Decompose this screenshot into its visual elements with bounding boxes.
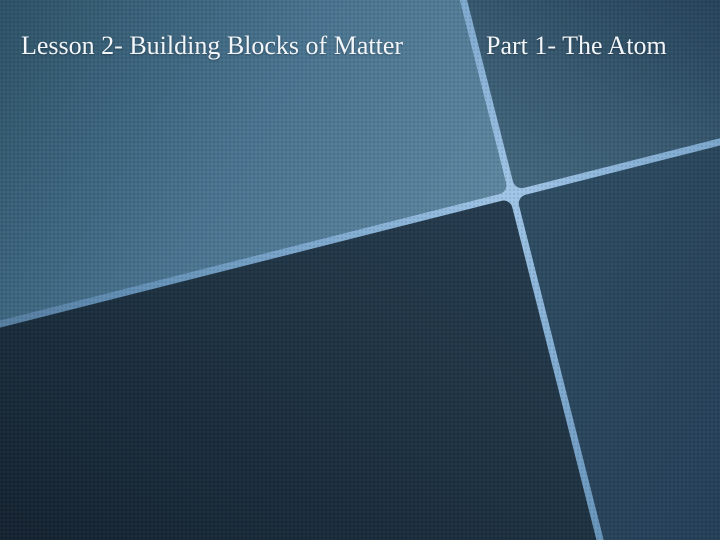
slide-title-part: Part 1- The Atom (486, 33, 667, 59)
slide-canvas[interactable]: Lesson 2- Building Blocks of Matter Part… (0, 0, 720, 540)
slide-title-lesson: Lesson 2- Building Blocks of Matter (21, 33, 403, 59)
